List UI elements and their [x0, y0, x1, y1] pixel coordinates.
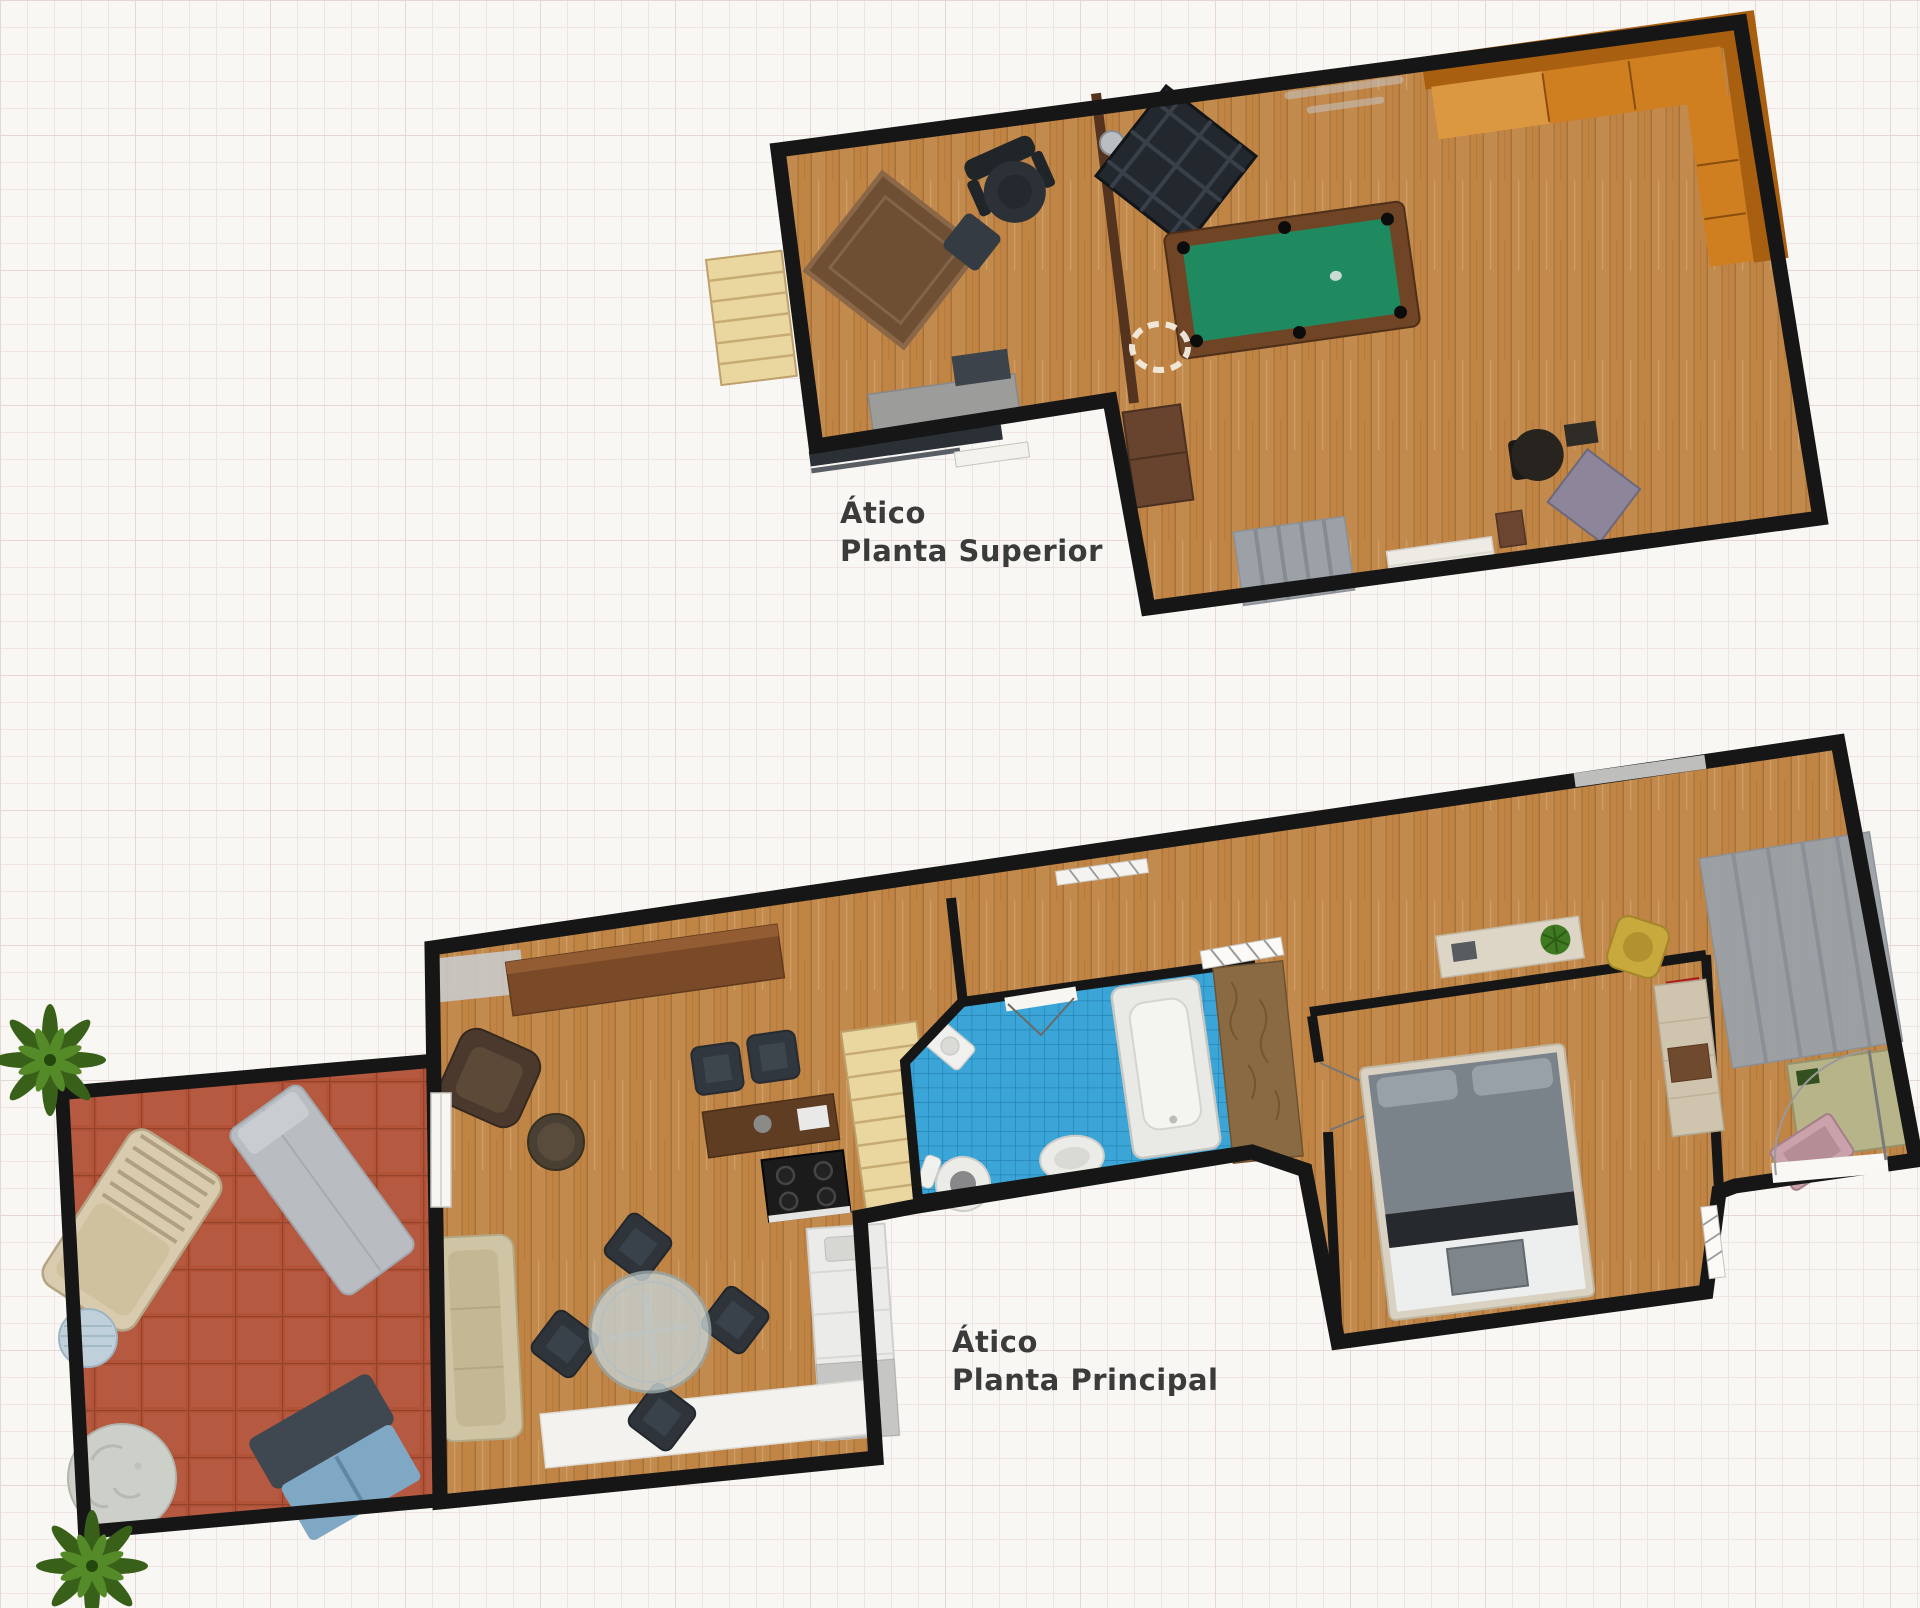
office-door-threshold — [954, 442, 1029, 467]
upper-label-line1: Ático — [840, 496, 926, 530]
main-floor-label: Ático Planta Principal — [952, 1325, 1218, 1397]
upper-floor-label: Ático Planta Superior — [840, 496, 1103, 568]
stone-dot — [135, 1463, 142, 1470]
threshold-strip — [954, 442, 1029, 467]
desk-gear — [1564, 421, 1599, 447]
stove — [762, 1150, 851, 1223]
box-body — [1496, 510, 1526, 547]
main-label-line2: Planta Principal — [952, 1363, 1218, 1397]
desk-device — [1451, 941, 1477, 962]
desk-keyboard — [797, 1105, 830, 1131]
wardrobe-box — [1668, 1044, 1712, 1083]
terrace — [0, 1004, 465, 1608]
small-brown-box — [1496, 510, 1526, 547]
upper-label-line2: Planta Superior — [840, 534, 1103, 568]
double-bed — [1359, 1043, 1594, 1320]
desk-chair-left — [690, 1042, 744, 1096]
footboard-tv — [1447, 1240, 1528, 1295]
chair-cushion — [703, 1054, 732, 1083]
upper-stairs — [706, 251, 797, 385]
desk-green-item — [1796, 1068, 1820, 1086]
ottoman-top — [537, 1123, 575, 1161]
floor-plan-canvas: Ático Planta Superior — [0, 0, 1920, 1608]
chair-cushion — [759, 1042, 788, 1071]
main-label-line1: Ático — [952, 1325, 1038, 1359]
terrace-doorway — [431, 1093, 451, 1207]
floor-plan-page: Ático Planta Superior — [0, 0, 1920, 1608]
ottoman — [528, 1114, 584, 1170]
desk-chair-right — [746, 1030, 800, 1084]
sofa-cushions — [447, 1249, 506, 1427]
